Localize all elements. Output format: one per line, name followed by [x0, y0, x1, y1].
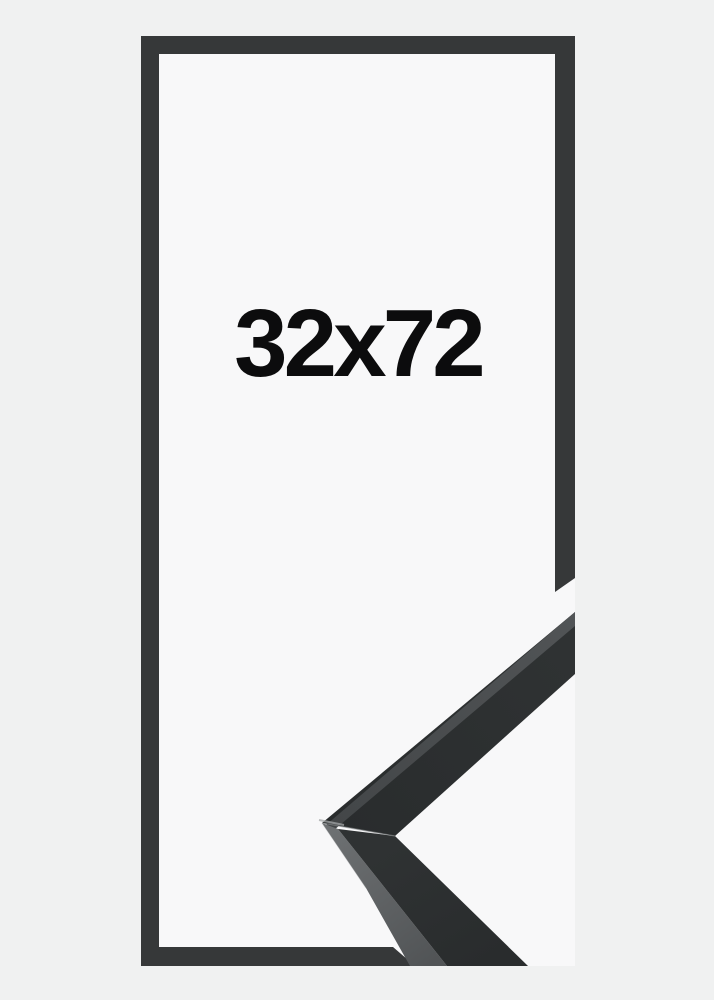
frame-border-left [141, 36, 159, 966]
size-label: 32x72 [141, 296, 575, 392]
frame-border-bottom [141, 947, 415, 966]
frame-size-mockup [0, 0, 714, 1000]
product-image: 32x72 [0, 0, 714, 1000]
frame-border-top [141, 36, 575, 54]
